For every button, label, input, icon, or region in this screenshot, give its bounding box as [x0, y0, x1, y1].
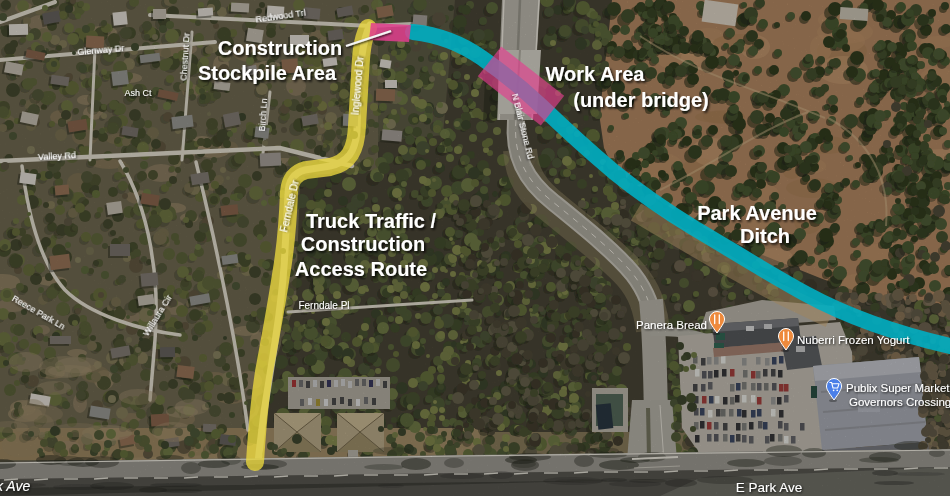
svg-text:Access Route: Access Route	[295, 258, 427, 280]
svg-text:Valley Rd: Valley Rd	[38, 150, 76, 162]
svg-text:Stockpile Area: Stockpile Area	[198, 62, 337, 84]
svg-text:k Ave: k Ave	[0, 478, 30, 494]
svg-text:Truck Traffic /: Truck Traffic /	[306, 210, 436, 232]
svg-text:Ferndale Pl: Ferndale Pl	[298, 300, 349, 311]
svg-text:(under bridge): (under bridge)	[573, 89, 709, 111]
svg-text:Ditch: Ditch	[740, 225, 790, 247]
svg-text:Publix Super Market: Publix Super Market	[846, 382, 950, 394]
svg-text:Construction: Construction	[218, 37, 342, 59]
svg-text:Work Area: Work Area	[546, 63, 646, 85]
svg-text:Construction: Construction	[301, 233, 425, 255]
svg-text:Ash Ct: Ash Ct	[124, 88, 152, 98]
svg-text:Park Avenue: Park Avenue	[697, 202, 817, 224]
svg-text:Nuberri Frozen Yogurt: Nuberri Frozen Yogurt	[797, 334, 910, 346]
svg-text:Governors Crossing: Governors Crossing	[849, 396, 950, 408]
svg-text:E Park Ave: E Park Ave	[736, 480, 803, 495]
svg-text:Panera Bread: Panera Bread	[636, 319, 707, 331]
